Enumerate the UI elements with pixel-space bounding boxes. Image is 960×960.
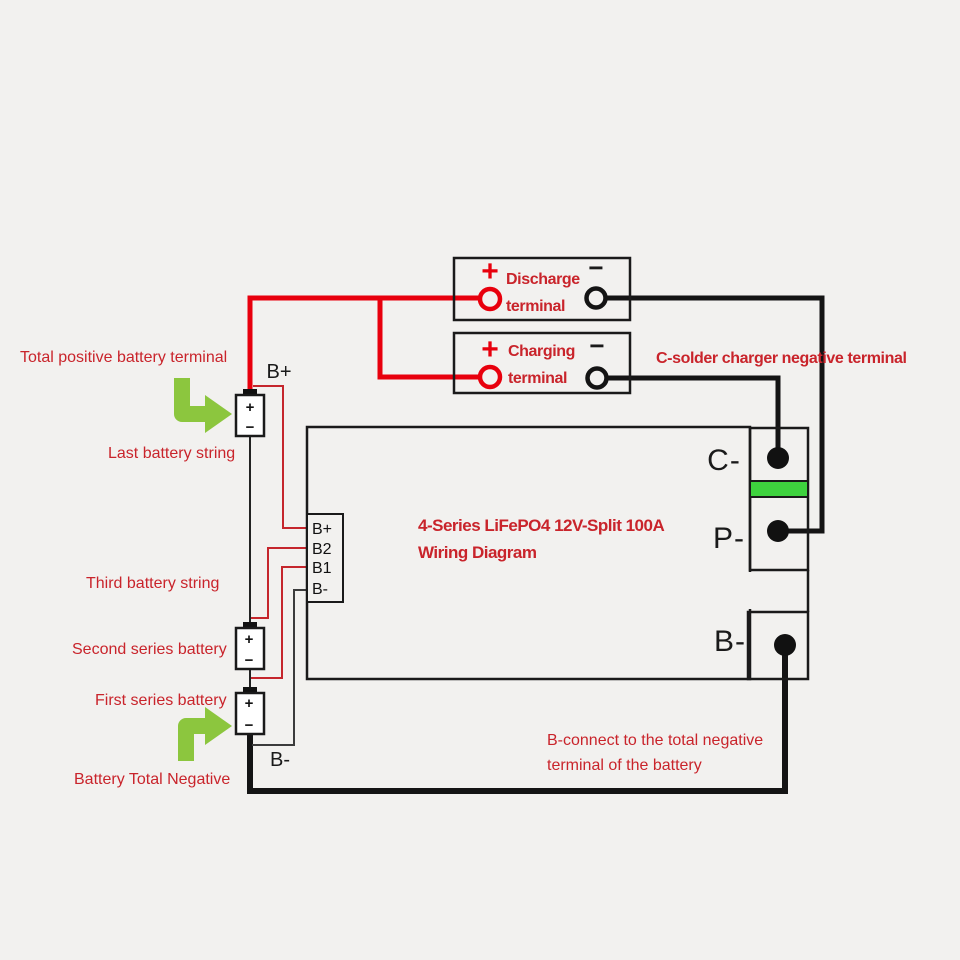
arrow-up-right-icon [186,707,232,761]
discharge-label-line2: terminal [506,297,565,316]
board-edge-gap [746,572,753,609]
pad-label-c: C- [707,443,741,479]
b-connect-annotation-line1: B-connect to the total negative [547,731,763,750]
wire-charging-negative-to-c-pad [607,378,778,452]
last-battery-annotation: Last battery string [108,444,235,463]
third-battery-annotation: Third battery string [86,574,219,593]
battery-second-plus: + [245,631,254,649]
c-solder-annotation: C-solder charger negative terminal [656,349,907,368]
second-battery-annotation: Second series battery [72,640,227,659]
wire-b-pad-to-battery-total-negative [250,650,785,791]
first-battery-annotation: First series battery [95,691,227,710]
arrow-down-right-icon [182,378,232,433]
port-label-b-plus: B+ [312,520,332,539]
discharge-plus-sign: + [481,254,499,290]
p-pad-solder-dot [767,520,789,542]
charging-positive-ring [480,367,500,387]
pad-label-b: B- [714,624,746,660]
board-title-line1: 4-Series LiFePO4 12V-Split 100A [418,516,664,536]
wire-branch-to-charging [380,298,480,377]
b-pad-solder-dot [774,634,796,656]
port-label-b1: B1 [312,559,332,578]
b-minus-wire-label: B- [270,748,290,772]
b-plus-wire-label: B+ [266,360,291,384]
port-label-b2: B2 [312,540,332,559]
b-connect-annotation-line2: terminal of the battery [547,756,702,775]
discharge-minus-sign: − [588,252,603,283]
wiring-diagram: 4-Series LiFePO4 12V-Split 100A Wiring D… [0,0,960,960]
arrow-head [205,707,232,745]
battery-first-plus: + [245,695,254,713]
battery-total-negative-annotation: Battery Total Negative [74,770,230,789]
total-positive-annotation: Total positive battery terminal [20,348,227,367]
charging-plus-sign: + [481,332,499,368]
board-title-line2: Wiring Diagram [418,543,536,563]
arrow-shaft [182,378,205,414]
battery-second-minus: − [245,652,254,670]
arrow-shaft [186,726,205,761]
c-pad-solder-dot [767,447,789,469]
charging-negative-ring [588,369,607,388]
green-separator-bar [750,481,808,497]
battery-first-minus: − [245,717,254,735]
port-label-b-minus: B- [312,580,328,599]
battery-last-minus: − [246,419,255,437]
arrow-head [205,395,232,433]
charging-minus-sign: − [589,330,604,361]
diagram-canvas [0,0,960,960]
discharge-negative-ring [587,289,606,308]
charging-label-line1: Charging [508,342,575,361]
sense-wire-b2 [251,548,307,618]
discharge-label-line1: Discharge [506,270,580,289]
pad-label-p: P- [713,521,745,557]
battery-last-plus: + [246,399,255,417]
charging-label-line2: terminal [508,369,567,388]
discharge-positive-ring [480,289,500,309]
